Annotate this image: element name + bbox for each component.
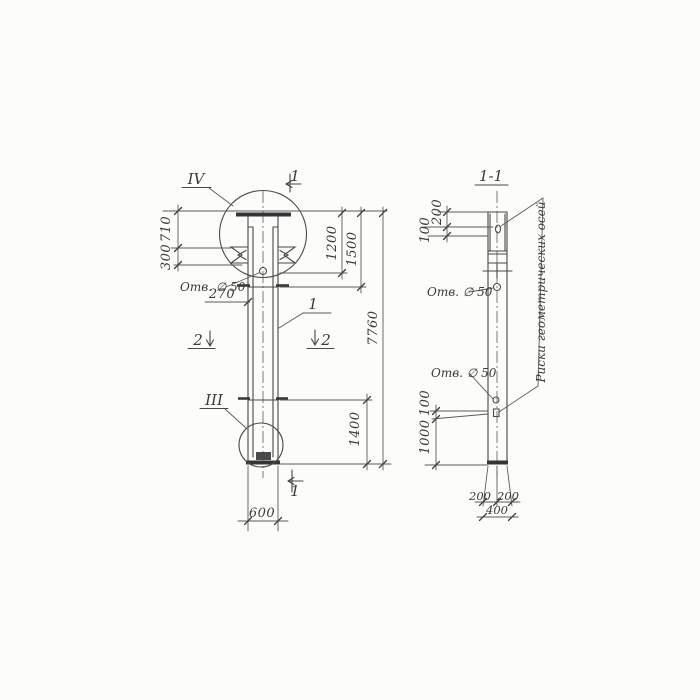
dim-300-label: 300	[159, 244, 174, 270]
dim-200-bottom-right-label: 200	[496, 489, 519, 503]
elevation-view: IV 1 2 2 1 III 1 Отв. ∅ 50 270 710 300 1…	[159, 167, 391, 531]
right-bracket	[278, 247, 295, 263]
bottom-plug	[256, 452, 271, 460]
detail-circle-bottom	[239, 423, 283, 467]
left-bracket	[231, 247, 248, 263]
axes-note-label: Риски геометрических осей	[534, 201, 548, 383]
dim-100-bottom-label: 100	[418, 390, 433, 416]
dim-270-label: 270	[208, 287, 235, 302]
dim-100-top-label: 100	[418, 217, 433, 243]
item-number-label: 1	[308, 295, 318, 313]
dim-400-label: 400	[485, 503, 508, 517]
detail-marker-iv-label: IV	[187, 170, 207, 188]
dim-600-label: 600	[249, 506, 275, 521]
section-body	[483, 212, 512, 463]
hole-label-section-bottom: Отв. ∅ 50	[431, 366, 497, 380]
dim-1200-label: 1200	[325, 225, 340, 260]
column-drawing: IV 1 2 2 1 III 1 Отв. ∅ 50 270 710 300 1…	[0, 0, 700, 700]
dim-1400-label: 1400	[348, 411, 363, 446]
dim-1000-label: 1000	[418, 419, 433, 454]
dim-710-label: 710	[159, 216, 174, 242]
axis-mark-top	[496, 225, 501, 233]
technical-drawing-sheet: IV 1 2 2 1 III 1 Отв. ∅ 50 270 710 300 1…	[0, 0, 700, 700]
dim-7760-label: 7760	[366, 310, 381, 345]
elevation-marks	[182, 174, 334, 492]
detail-marker-iii-label: III	[204, 391, 224, 409]
axis-mark-bottom	[494, 409, 500, 417]
section-title: 1-1	[479, 167, 503, 185]
dim-1500-label: 1500	[345, 231, 360, 266]
cut-mark-2-left-label: 2	[192, 331, 203, 349]
hole-label-section-top: Отв. ∅ 50	[427, 285, 493, 299]
cut-mark-2-right-label: 2	[320, 331, 331, 349]
dim-200-bottom-left-label: 200	[468, 489, 491, 503]
cut-mark-1-top-label: 1	[290, 167, 300, 185]
hole-section-bottom	[493, 397, 499, 403]
cut-mark-1-bottom-label: 1	[290, 482, 300, 500]
section-view: 1-1 Отв. ∅ 50 Отв. ∅ 50 Риски геометриче…	[418, 167, 548, 521]
